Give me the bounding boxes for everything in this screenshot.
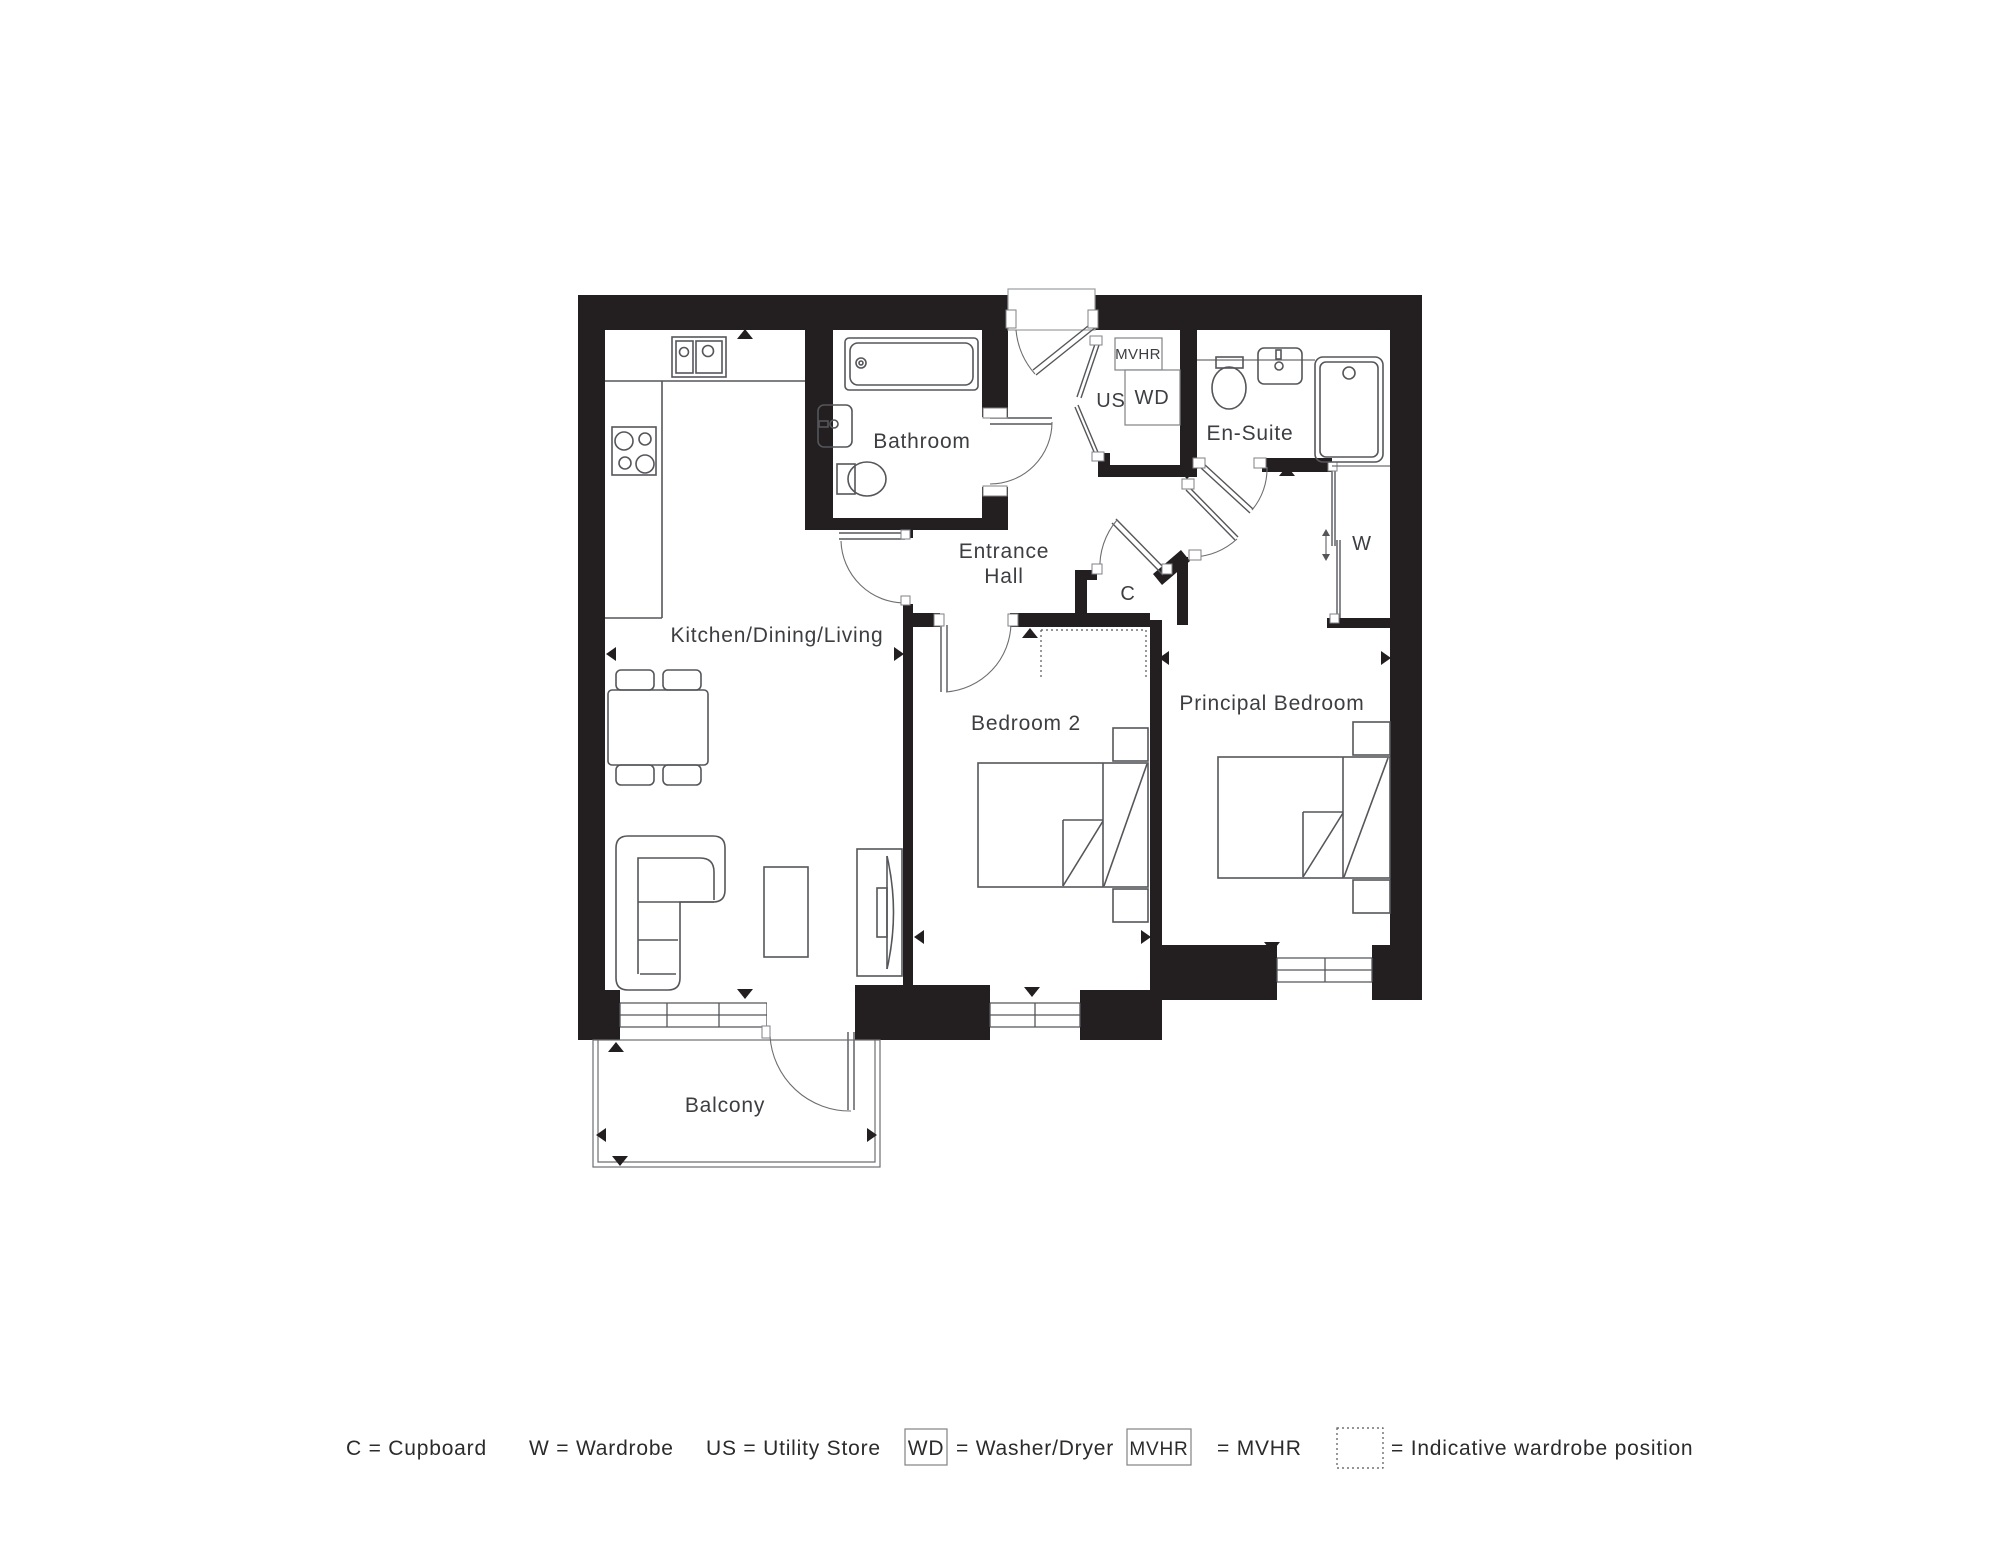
wall-top-left <box>578 295 1008 330</box>
bedroom2-bedside-table-bottom <box>1113 889 1148 922</box>
principal-door <box>1186 487 1238 557</box>
arrow-icon <box>1381 651 1391 665</box>
bathroom-door <box>990 418 1052 484</box>
dining-table <box>608 670 708 785</box>
bedroom2-door <box>941 623 1011 692</box>
wall-bedroom2-principal <box>1150 620 1162 945</box>
hob <box>612 427 656 475</box>
legend-wd-symbol: WD <box>908 1437 945 1460</box>
coffee-table <box>764 867 808 957</box>
label-wardrobe: W <box>1352 533 1372 555</box>
front-door-recess <box>1008 289 1095 330</box>
living-furniture <box>608 670 902 990</box>
label-cupboard: C <box>1120 583 1135 605</box>
bedroom2-bedside-table-top <box>1113 728 1148 761</box>
cupboard-door <box>1100 519 1167 575</box>
bathroom-toilet <box>837 462 886 496</box>
kitchen-counter <box>605 381 805 618</box>
label-entrance-line1: Entrance <box>959 540 1049 563</box>
legend-wd-label: = Washer/Dryer <box>956 1437 1114 1460</box>
balcony-door <box>770 1032 854 1111</box>
legend-wardrobe: W = Wardrobe <box>529 1437 674 1460</box>
wall-bathroom-bottom <box>805 518 990 530</box>
shower <box>1315 357 1383 462</box>
wall-left <box>578 295 605 1040</box>
corner-sofa <box>616 836 725 990</box>
tv-unit <box>857 849 902 976</box>
label-principal: Principal Bedroom <box>1179 692 1364 715</box>
balcony-door-opening <box>767 985 855 1040</box>
wardrobe-sliding-doors <box>1322 470 1340 618</box>
arrow-icon <box>914 930 924 944</box>
door-jambs <box>762 310 1339 1038</box>
living-door <box>839 533 905 603</box>
label-mvhr: MVHR <box>1115 346 1161 363</box>
bathtub <box>845 338 978 390</box>
wall-bottom-principal-block <box>1150 945 1277 1000</box>
ensuite-basin <box>1258 348 1302 384</box>
wall-bottom-c <box>1080 990 1162 1040</box>
wall-bathroom-left <box>805 330 833 530</box>
bedroom2-furniture <box>978 630 1148 922</box>
ensuite-toilet <box>1212 357 1246 409</box>
walls <box>578 295 1422 1040</box>
kitchen-sink <box>672 337 726 377</box>
wall-top-right <box>1095 295 1422 330</box>
legend-mvhr-label: = MVHR <box>1217 1437 1302 1460</box>
label-wd: WD <box>1135 387 1170 409</box>
wall-right <box>1390 295 1422 1000</box>
wall-utility-right <box>1180 330 1197 477</box>
bedroom2-bed <box>978 763 1148 887</box>
arrow-icon <box>737 329 753 339</box>
arrow-icon <box>894 647 904 661</box>
principal-bedside-table-top <box>1353 722 1390 755</box>
label-utility: US <box>1096 390 1125 412</box>
legend-utility: US = Utility Store <box>706 1437 881 1460</box>
bathroom-fixtures <box>818 338 978 496</box>
legend-mvhr-symbol: MVHR <box>1129 1439 1188 1460</box>
wall-ensuite-bottom <box>1262 458 1332 472</box>
label-entrance-line2: Hall <box>984 565 1023 588</box>
arrow-icon <box>1141 930 1151 944</box>
wall-bottom-a <box>578 990 620 1040</box>
indicative-wardrobe-position <box>1041 630 1146 678</box>
label-balcony: Balcony <box>685 1094 765 1117</box>
principal-bed <box>1218 757 1390 878</box>
floor-plan: Kitchen/Dining/Living Bathroom Entrance … <box>0 0 2000 1561</box>
kitchen-fittings <box>605 337 805 618</box>
wall-living-bedroom2 <box>903 604 913 990</box>
arrow-icon <box>608 1042 624 1052</box>
arrow-icon <box>1022 628 1038 638</box>
legend-dotted-box <box>1337 1428 1383 1468</box>
label-kitchen: Kitchen/Dining/Living <box>671 624 884 647</box>
legend-cupboard: C = Cupboard <box>346 1437 487 1460</box>
label-bathroom: Bathroom <box>873 430 970 453</box>
principal-bedside-table-bottom <box>1353 880 1390 913</box>
arrow-icon <box>606 647 616 661</box>
legend-indicative-label: = Indicative wardrobe position <box>1391 1437 1693 1460</box>
legend: C = Cupboard W = Wardrobe US = Utility S… <box>346 1428 1693 1468</box>
wall-bottom-b <box>855 985 990 1040</box>
label-ensuite: En-Suite <box>1207 422 1294 445</box>
ensuite-door <box>1201 464 1267 513</box>
wall-bottom-principal-corner <box>1372 945 1422 1000</box>
label-bedroom2: Bedroom 2 <box>971 712 1081 735</box>
arrow-icon <box>612 1156 628 1166</box>
wall-bathroom-right-upper <box>982 330 1008 417</box>
